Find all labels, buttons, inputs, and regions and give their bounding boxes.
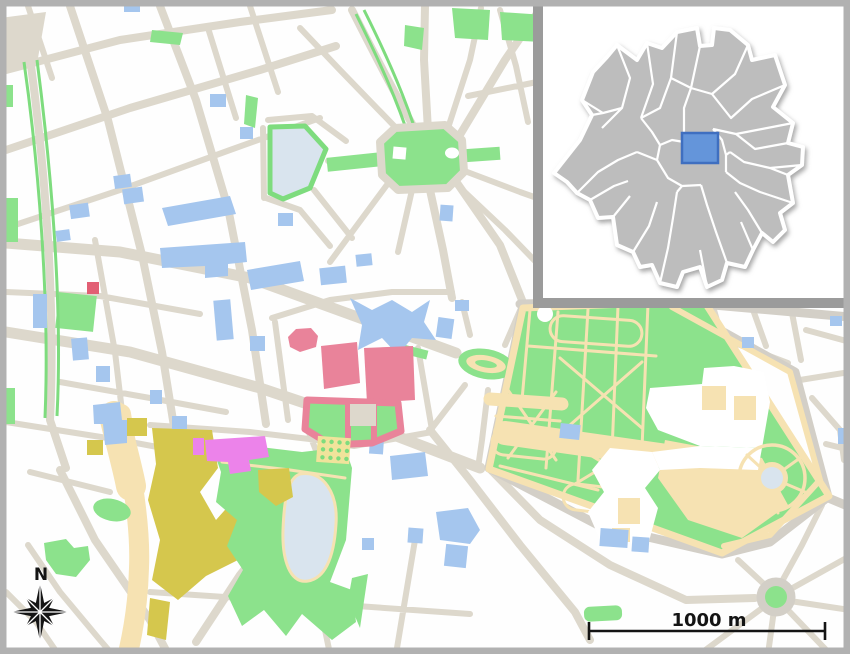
inset-map (538, 0, 850, 303)
parc-leopold (215, 446, 356, 640)
formal-garden (316, 436, 351, 464)
compass-north-label: N (34, 565, 48, 585)
scale-bar-label: 1000 m (671, 610, 746, 631)
map-screenshot: N 1000 m (0, 0, 850, 654)
octagon-square (380, 125, 464, 190)
small-red-building (87, 282, 99, 294)
pond-square (270, 126, 326, 199)
inset-highlight-rect (682, 133, 718, 163)
park-monument-dot (537, 306, 553, 322)
city-map: N 1000 m (0, 0, 850, 654)
